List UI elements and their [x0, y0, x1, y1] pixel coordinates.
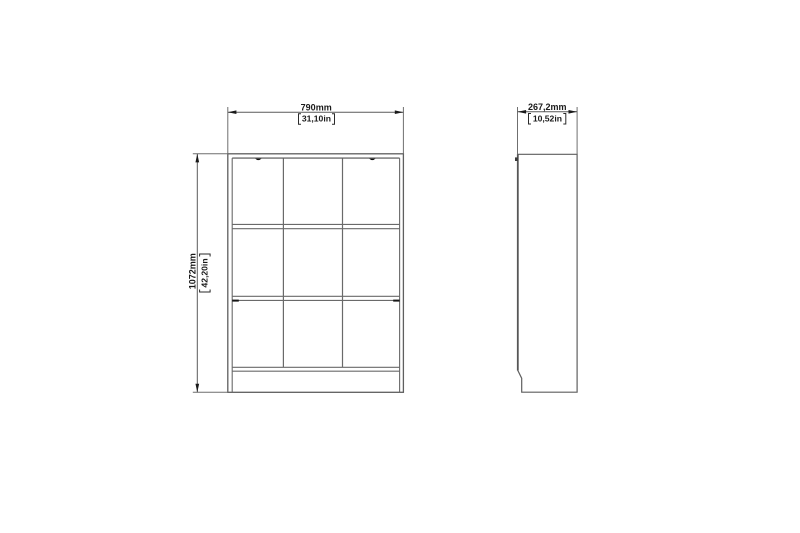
svg-text:267,2mm: 267,2mm	[528, 102, 567, 112]
svg-text:10,52in: 10,52in	[533, 114, 562, 124]
svg-text:31,10in: 31,10in	[302, 114, 331, 124]
svg-text:1072mm: 1072mm	[188, 253, 198, 289]
svg-text:790mm: 790mm	[301, 102, 332, 112]
svg-text:42,20in: 42,20in	[200, 258, 210, 287]
